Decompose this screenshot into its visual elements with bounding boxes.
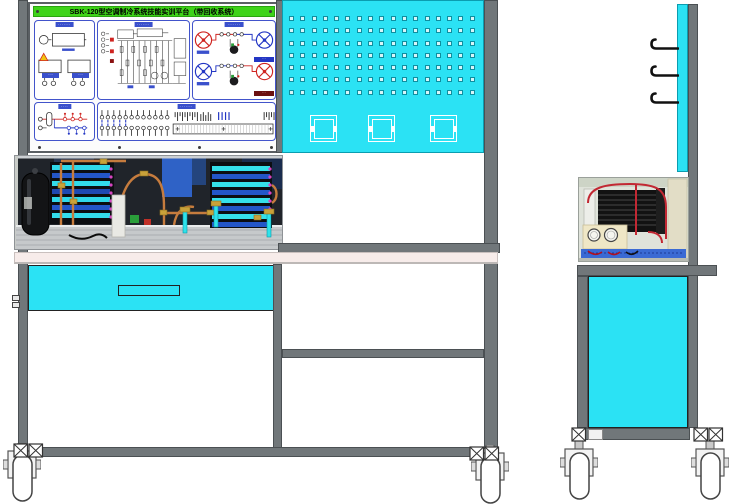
pegboard-hole <box>312 41 317 46</box>
pegboard-hole <box>289 28 294 33</box>
pegboard-hole <box>345 16 350 21</box>
pegboard-hole <box>289 16 294 21</box>
pegboard-hole <box>425 41 430 46</box>
pegboard-hole <box>436 53 441 58</box>
pegboard-holes <box>289 16 481 102</box>
pegboard-hole <box>289 90 294 95</box>
pegboard-hole <box>413 28 418 33</box>
pegboard-hole <box>345 28 350 33</box>
pegboard-hole <box>470 77 475 82</box>
pegboard-hole <box>391 65 396 70</box>
pegboard-hole <box>425 65 430 70</box>
screw-icon <box>270 146 273 149</box>
pegboard-hole <box>379 53 384 58</box>
pegboard-hole <box>413 90 418 95</box>
pegboard-hole <box>368 65 373 70</box>
pegboard-fixture <box>430 115 457 142</box>
pegboard-hole <box>470 53 475 58</box>
pegboard-hole <box>334 77 339 82</box>
system-badge: ··· <box>254 57 274 62</box>
pegboard-hole <box>402 90 407 95</box>
pegboard-hole <box>391 53 396 58</box>
pegboard-hole <box>368 28 373 33</box>
screw-icon <box>38 146 41 149</box>
pegboard-hole <box>300 41 305 46</box>
pegboard-hole <box>334 53 339 58</box>
pegboard-hole <box>425 77 430 82</box>
screw-icon <box>198 146 201 149</box>
control-panel-board: SBK-120型空调制冷系统技能实训平台（带回收系统） ······· <box>28 2 280 153</box>
side-photo <box>578 177 689 262</box>
latch-icon <box>12 295 20 301</box>
pegboard-hole <box>425 16 430 21</box>
caster-mount <box>693 427 725 447</box>
pegboard-hole <box>357 90 362 95</box>
pegboard-hole <box>323 41 328 46</box>
pegboard-hole <box>447 77 452 82</box>
pegboard-hole <box>312 77 317 82</box>
hook-icon <box>647 90 679 110</box>
pegboard-hole <box>357 65 362 70</box>
pegboard-hole <box>368 53 373 58</box>
schematic-panel: ······· <box>97 20 190 100</box>
equipment-drawing: SBK-120型空调制冷系统技能实训平台（带回收系统） ······· <box>0 0 730 504</box>
pegboard-hole <box>458 90 463 95</box>
side-bench-rail <box>577 265 717 276</box>
bottom-rail <box>30 447 476 457</box>
pegboard-hole <box>447 53 452 58</box>
pegboard-hole <box>391 90 396 95</box>
pegboard-hole <box>323 90 328 95</box>
pegboard-hole <box>470 28 475 33</box>
terminals-diagram <box>98 109 275 140</box>
pegboard-hole <box>368 41 373 46</box>
pegboard-hole <box>334 65 339 70</box>
pegboard-hole <box>436 90 441 95</box>
terminals-panel: ······· <box>97 102 276 141</box>
latch-icon <box>12 302 20 308</box>
pegboard-hole <box>402 77 407 82</box>
pegboard-hole <box>447 28 452 33</box>
pegboard-hole <box>458 53 463 58</box>
terminal-switch-group <box>100 110 169 136</box>
pegboard-hole <box>413 16 418 21</box>
meter-label: ···· <box>72 73 89 78</box>
meter-label: ···· <box>42 73 59 78</box>
pegboard-fixture <box>310 115 337 142</box>
screw-icon <box>118 146 121 149</box>
pegboard-hole <box>289 77 294 82</box>
piping-diagram <box>35 109 94 140</box>
pegboard-hole <box>447 90 452 95</box>
pegboard-fixture <box>368 115 395 142</box>
system-badge: ··· <box>254 91 274 96</box>
pegboard-hole <box>323 53 328 58</box>
pegboard-hole <box>447 41 452 46</box>
bench-top <box>14 252 498 264</box>
pegboard-hole <box>300 77 305 82</box>
power-panel-diagram <box>35 27 94 99</box>
pegboard-hole <box>402 41 407 46</box>
pegboard-hole <box>379 77 384 82</box>
refrigeration-diagram <box>193 27 275 97</box>
pegboard-hole <box>312 16 317 21</box>
pegboard-hole <box>300 53 305 58</box>
pegboard-hole <box>436 65 441 70</box>
pegboard-hole <box>391 77 396 82</box>
caster-wheel <box>560 441 598 504</box>
pegboard-hole <box>436 77 441 82</box>
side-post <box>688 4 698 428</box>
pegboard-hole <box>368 16 373 21</box>
pegboard-hole <box>402 16 407 21</box>
side-cabinet <box>588 276 688 428</box>
pegboard-hole <box>470 90 475 95</box>
pegboard-hole <box>334 90 339 95</box>
pegboard-hole <box>413 41 418 46</box>
drawer <box>28 265 274 311</box>
pegboard-hole <box>379 41 384 46</box>
pegboard-hole <box>391 16 396 21</box>
side-frame-left <box>577 276 588 428</box>
pegboard-hole <box>425 90 430 95</box>
pegboard-hole <box>312 65 317 70</box>
pegboard-hole <box>289 65 294 70</box>
pegboard-hole <box>300 90 305 95</box>
pegboard-hole <box>402 53 407 58</box>
screw-icon <box>269 10 272 13</box>
pegboard-hole <box>345 41 350 46</box>
pegboard-hole <box>379 28 384 33</box>
pegboard-hole <box>312 28 317 33</box>
pegboard-hole <box>357 28 362 33</box>
pegboard-hole <box>458 65 463 70</box>
pegboard-hole <box>334 28 339 33</box>
side-spacer-block <box>588 429 603 440</box>
pegboard-hole <box>379 65 384 70</box>
pegboard-hole <box>447 65 452 70</box>
pegboard-hole <box>323 16 328 21</box>
right-post <box>484 0 498 449</box>
pegboard-hole <box>345 77 350 82</box>
pegboard-hole <box>413 77 418 82</box>
pegboard-hole <box>391 28 396 33</box>
screw-icon <box>36 10 39 13</box>
pegboard-hole <box>357 77 362 82</box>
pegboard <box>282 0 484 153</box>
caster-mount <box>469 446 501 466</box>
pegboard-hole <box>323 65 328 70</box>
front-photo <box>14 155 283 250</box>
pegboard-hole <box>458 28 463 33</box>
power-panel: ······· <box>34 20 95 100</box>
schematic-diagram <box>98 27 189 97</box>
pegboard-hole <box>470 16 475 21</box>
middle-leg <box>273 264 282 448</box>
drawer-handle <box>118 285 180 296</box>
hook-icon <box>647 63 679 83</box>
pegboard-hole <box>345 65 350 70</box>
pegboard-hole <box>413 53 418 58</box>
pegboard-hole <box>458 41 463 46</box>
pegboard-hole <box>368 77 373 82</box>
pegboard-hole <box>413 65 418 70</box>
hook-icon <box>647 36 679 56</box>
pegboard-hole <box>436 41 441 46</box>
pegboard-hole <box>391 41 396 46</box>
pegboard-hole <box>334 16 339 21</box>
pegboard-hole <box>458 77 463 82</box>
caster-mount <box>571 427 588 447</box>
piping-panel: ···· <box>34 102 95 141</box>
pegboard-hole <box>436 16 441 21</box>
caster-mount <box>13 443 45 463</box>
pegboard-hole <box>357 41 362 46</box>
pegboard-hole <box>300 65 305 70</box>
pegboard-hole <box>323 28 328 33</box>
pegboard-hole <box>323 77 328 82</box>
pegboard-hole <box>402 65 407 70</box>
pegboard-hole <box>357 53 362 58</box>
pegboard-hole <box>470 41 475 46</box>
pegboard-hole <box>345 53 350 58</box>
pegboard-hole <box>470 65 475 70</box>
pegboard-hole <box>379 90 384 95</box>
pegboard-hole <box>425 28 430 33</box>
pegboard-hole <box>447 16 452 21</box>
pegboard-hole <box>300 28 305 33</box>
pegboard-hole <box>425 53 430 58</box>
pegboard-hole <box>289 41 294 46</box>
pegboard-hole <box>334 41 339 46</box>
board-title: SBK-120型空调制冷系统技能实训平台（带回收系统） <box>33 6 275 17</box>
pegboard-hole <box>436 28 441 33</box>
caster-wheel <box>691 441 729 504</box>
pegboard-hole <box>368 90 373 95</box>
pegboard-hole <box>345 90 350 95</box>
pegboard-hole <box>300 16 305 21</box>
shelf-rail <box>282 349 484 358</box>
pegboard-hole <box>379 16 384 21</box>
pegboard-hole <box>357 16 362 21</box>
pegboard-hole <box>289 53 294 58</box>
hooks <box>647 0 679 170</box>
refrigeration-panel: ······· <box>192 20 276 100</box>
pegboard-hole <box>458 16 463 21</box>
pegboard-hole <box>402 28 407 33</box>
pegboard-hole <box>312 53 317 58</box>
pegboard-hole <box>312 90 317 95</box>
